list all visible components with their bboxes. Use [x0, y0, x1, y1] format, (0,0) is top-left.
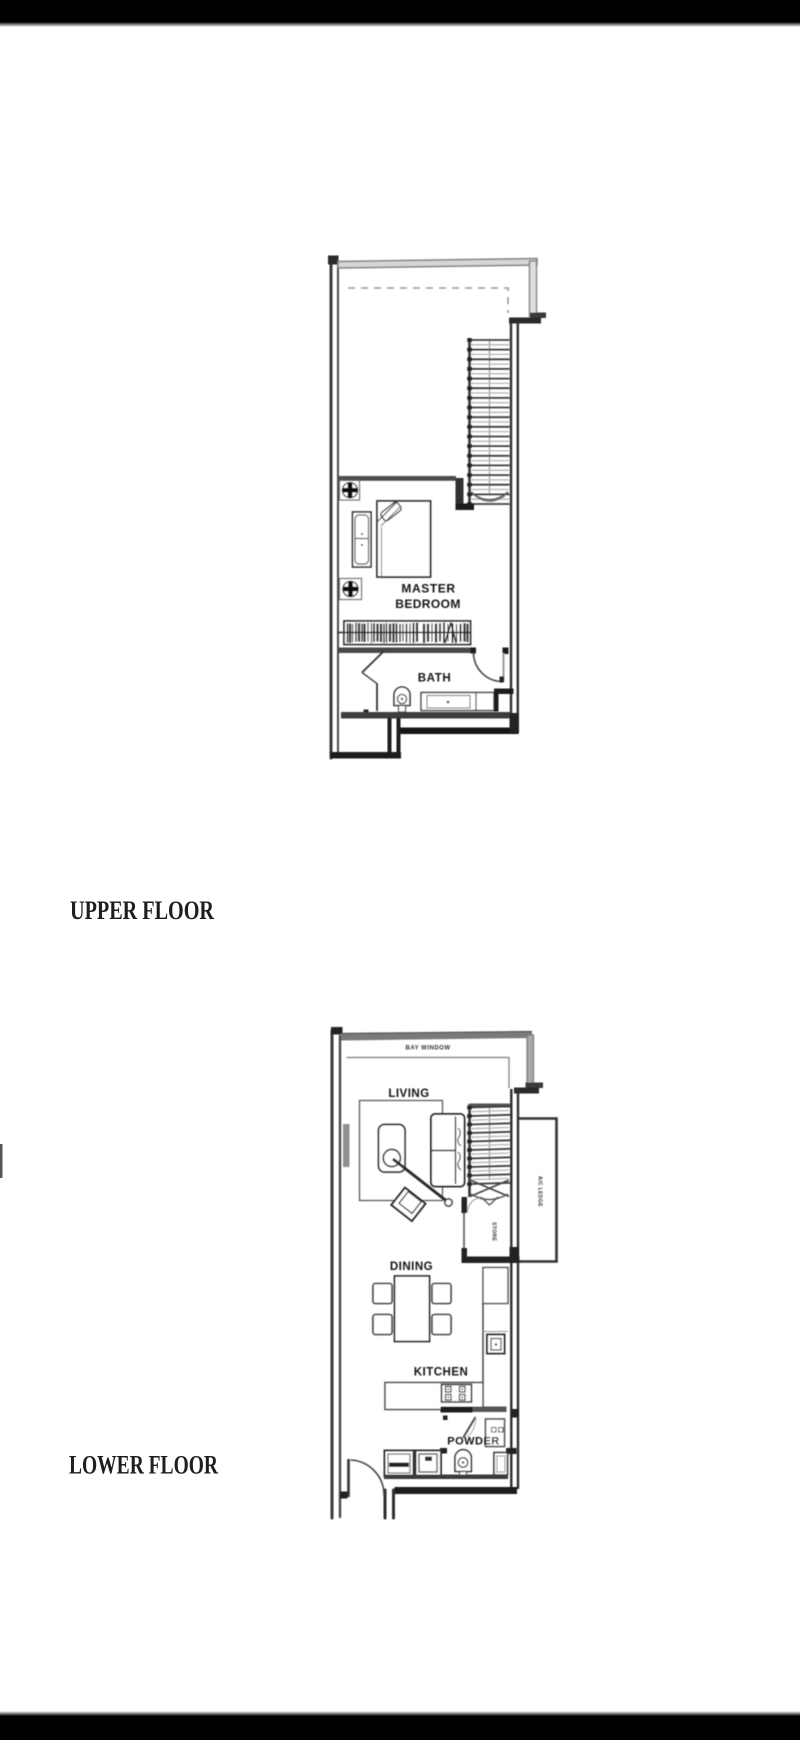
- svg-text:BEDROOM: BEDROOM: [395, 597, 460, 611]
- svg-text:LOWER FLOOR: LOWER FLOOR: [69, 1451, 218, 1480]
- svg-text:KITCHEN: KITCHEN: [414, 1367, 469, 1379]
- svg-text:DINING: DINING: [390, 1261, 433, 1273]
- svg-text:POWDER: POWDER: [447, 1436, 500, 1448]
- svg-text:MASTER: MASTER: [401, 582, 455, 596]
- svg-text:UPPER FLOOR: UPPER FLOOR: [70, 896, 214, 925]
- svg-text:A/C LEDGE: A/C LEDGE: [537, 1176, 543, 1207]
- svg-text:BAY WINDOW: BAY WINDOW: [405, 1046, 450, 1052]
- svg-text:LIVING: LIVING: [388, 1088, 429, 1100]
- svg-text:STORE: STORE: [491, 1222, 497, 1242]
- svg-text:BATH: BATH: [418, 673, 452, 685]
